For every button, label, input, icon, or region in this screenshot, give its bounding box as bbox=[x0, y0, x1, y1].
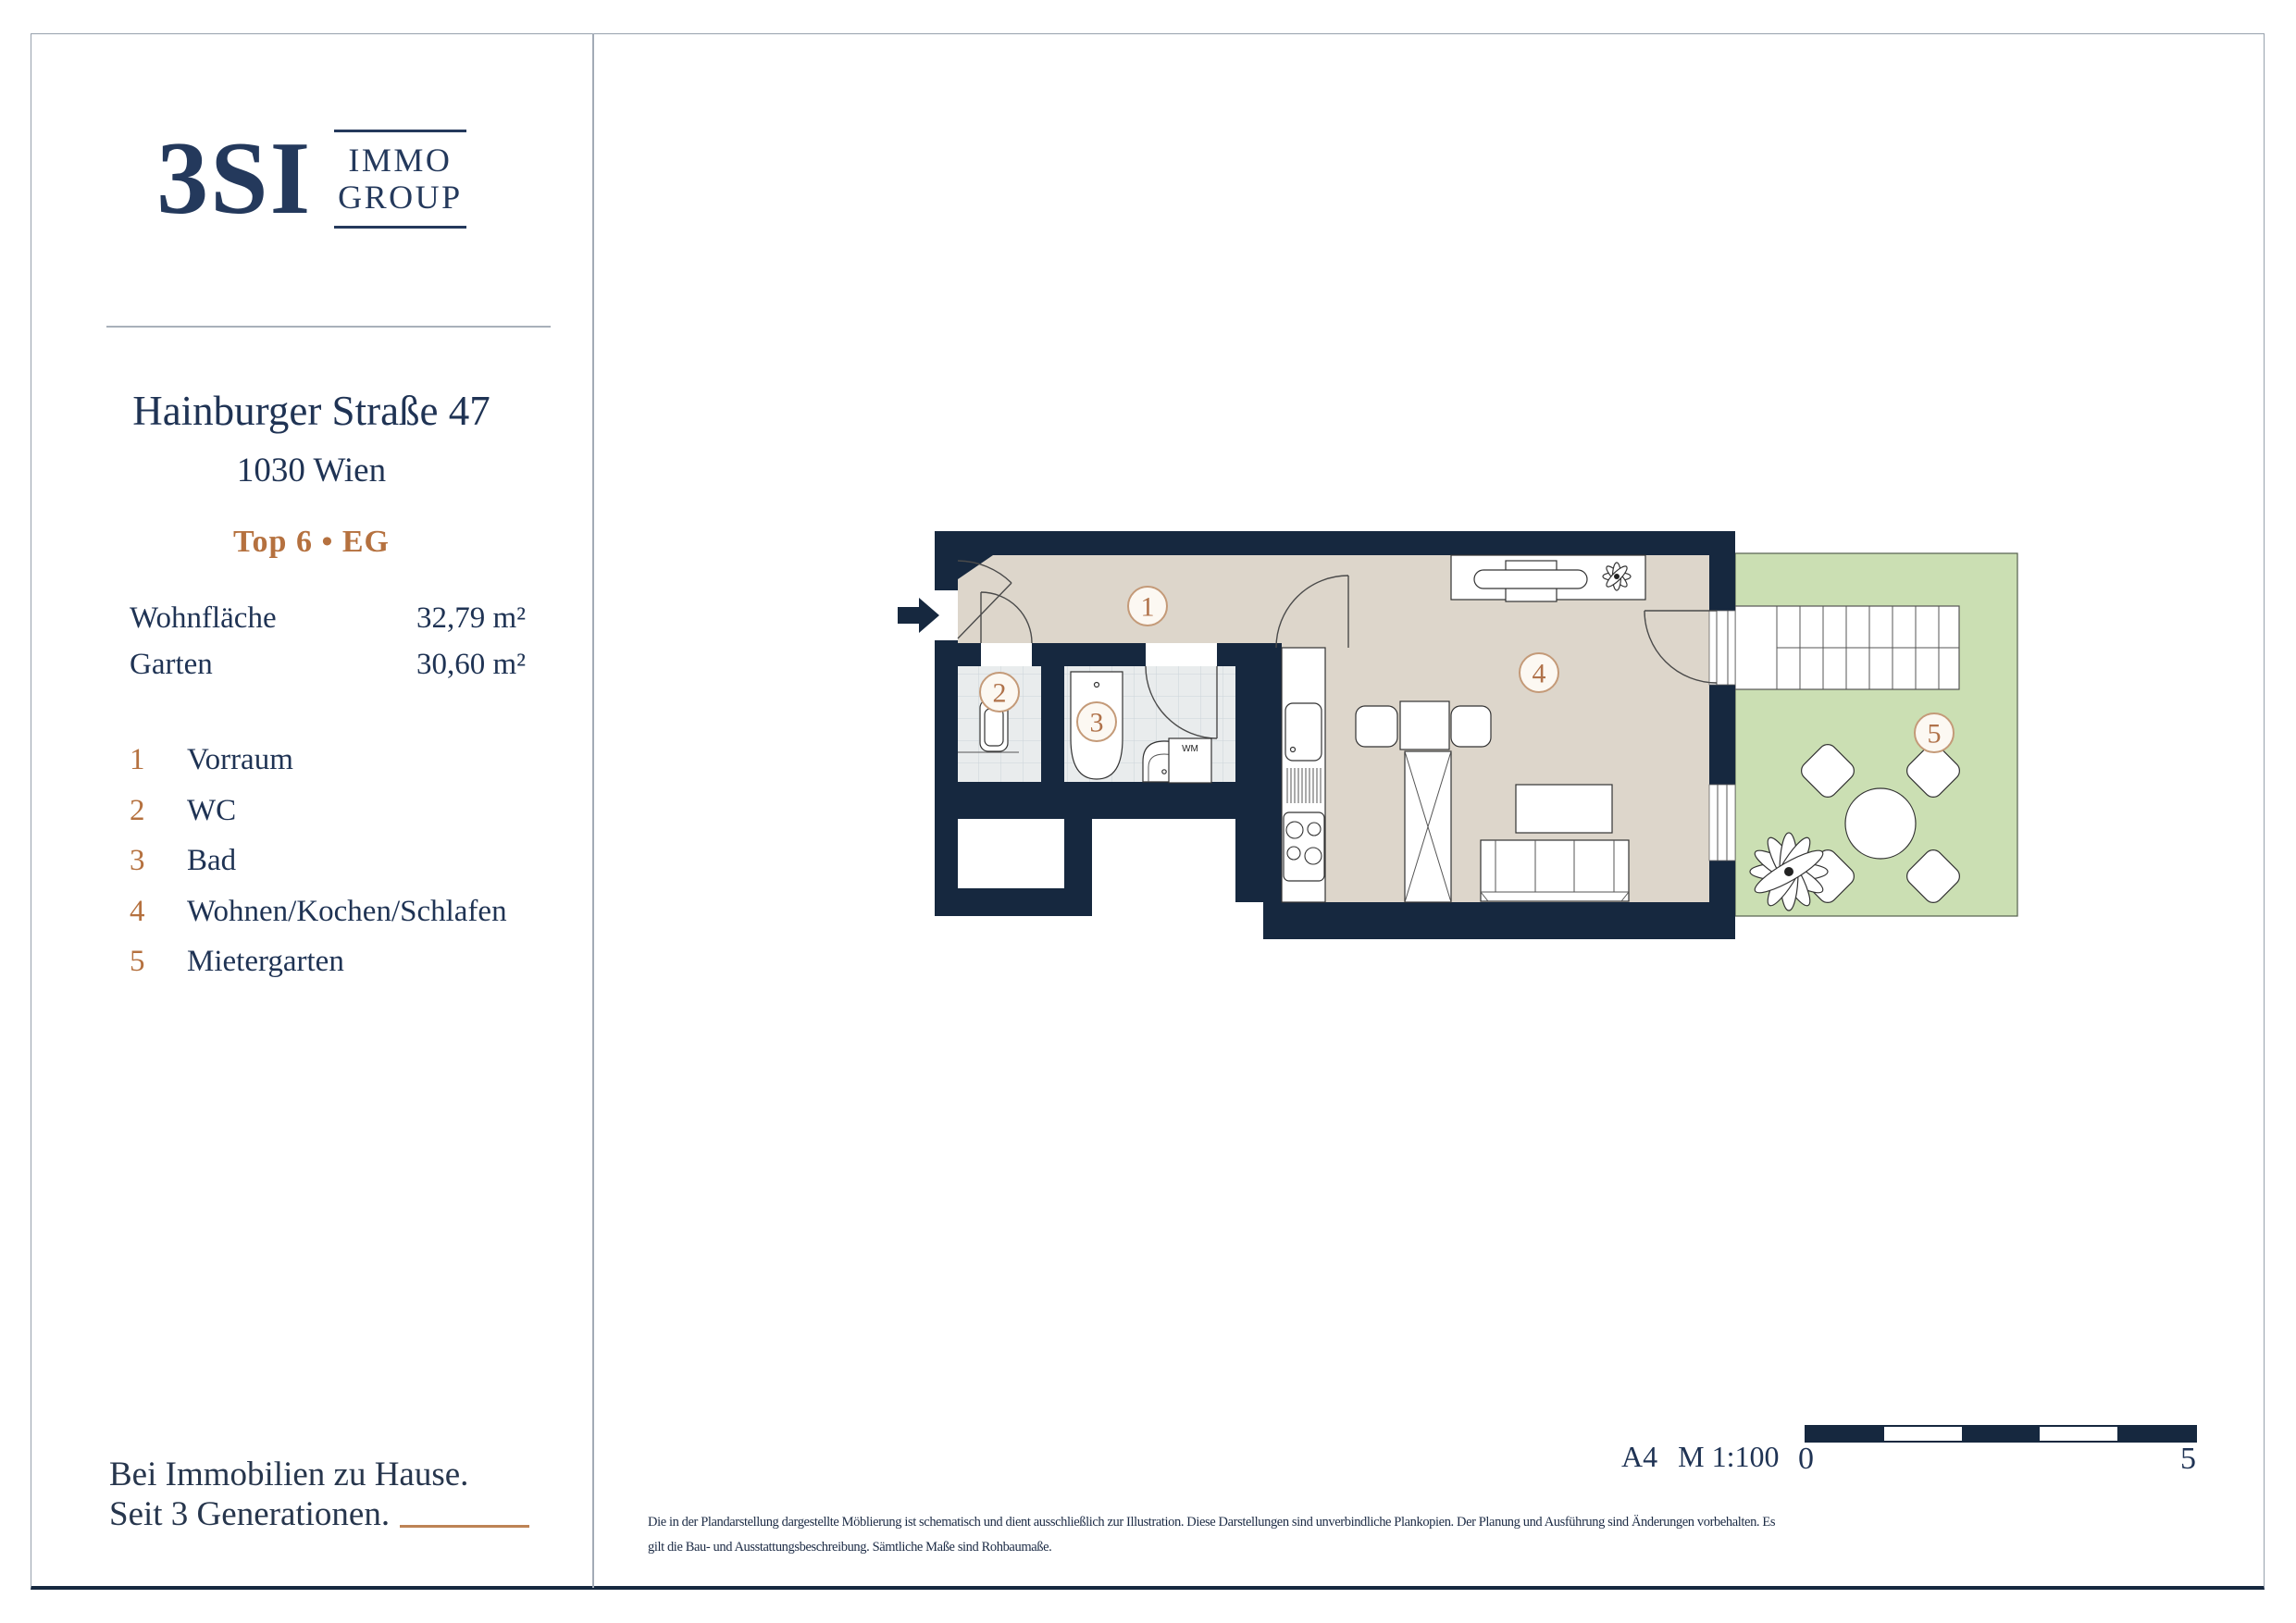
area-label: Wohnfläche bbox=[130, 601, 277, 636]
sheet-info: A4 M 1:100 bbox=[1621, 1440, 1779, 1474]
legend-number: 5 bbox=[130, 942, 187, 983]
legend-label: Wohnen/Kochen/Schlafen bbox=[187, 892, 507, 933]
legend-number: 1 bbox=[130, 740, 187, 781]
garden-stairs bbox=[1735, 606, 1959, 689]
disclaimer-text: Die in der Plandarstellung dargestellte … bbox=[648, 1510, 1851, 1560]
disclaimer-line1: Die in der Plandarstellung dargestellte … bbox=[648, 1510, 1851, 1535]
scale-bar bbox=[1805, 1425, 2197, 1443]
area-table: Wohnfläche 32,79 m² Garten 30,60 m² bbox=[130, 601, 526, 694]
area-row-wohnflaeche: Wohnfläche 32,79 m² bbox=[130, 601, 526, 636]
badge-vorraum: 1 bbox=[1128, 587, 1167, 626]
badge-mietergarten: 5 bbox=[1915, 713, 1954, 752]
scale-label-start: 0 bbox=[1798, 1442, 1814, 1477]
badge-bad: 3 bbox=[1077, 702, 1116, 741]
legend-label: Vorraum bbox=[187, 740, 293, 781]
area-row-garten: Garten 30,60 m² bbox=[130, 648, 526, 682]
sofa bbox=[1481, 840, 1629, 901]
floor-plan: WM bbox=[893, 518, 2050, 962]
logo-separator-line bbox=[106, 326, 551, 328]
logo-sub-line2: GROUP bbox=[338, 179, 463, 216]
room-legend: 1 Vorraum 2 WC 3 Bad 4 Wohnen/Kochen/Sch… bbox=[130, 740, 527, 993]
washing-machine: WM bbox=[1169, 738, 1211, 783]
sheet-scale: M 1:100 bbox=[1678, 1440, 1779, 1474]
table bbox=[1400, 701, 1449, 750]
desk-area bbox=[1451, 555, 1645, 601]
area-label: Garten bbox=[130, 648, 213, 682]
legend-item-wohnen: 4 Wohnen/Kochen/Schlafen bbox=[130, 892, 527, 933]
window bbox=[1709, 785, 1735, 861]
tagline-accent-rule bbox=[400, 1525, 529, 1528]
scale-segment bbox=[1884, 1427, 1962, 1441]
legend-item-wc: 2 WC bbox=[130, 791, 527, 832]
scale-segment bbox=[1806, 1427, 1884, 1441]
svg-text:5: 5 bbox=[1928, 719, 1942, 750]
dining-set bbox=[1356, 701, 1491, 750]
garden-door-threshold bbox=[1709, 611, 1735, 685]
legend-number: 4 bbox=[130, 892, 187, 933]
garden-table bbox=[1845, 788, 1916, 859]
chair bbox=[1356, 706, 1397, 747]
badge-wohnen: 4 bbox=[1520, 653, 1558, 692]
logo-immo-group: IMMO GROUP bbox=[334, 130, 466, 229]
wardrobe bbox=[1405, 751, 1451, 902]
logo-sub-line1: IMMO bbox=[348, 142, 452, 179]
chair bbox=[1451, 706, 1491, 747]
desk-chair bbox=[1474, 570, 1587, 588]
legend-item-bad: 3 Bad bbox=[130, 841, 527, 882]
tagline-line1: Bei Immobilien zu Hause. bbox=[109, 1455, 468, 1494]
coffee-table bbox=[1516, 785, 1612, 833]
svg-text:2: 2 bbox=[993, 678, 1007, 709]
legend-number: 2 bbox=[130, 791, 187, 832]
badge-wc: 2 bbox=[980, 673, 1019, 712]
plant-icon bbox=[1603, 563, 1631, 590]
property-city: 1030 Wien bbox=[31, 451, 592, 490]
property-street: Hainburger Straße 47 bbox=[31, 387, 592, 435]
unit-label: Top 6 • EG bbox=[31, 525, 592, 560]
legend-label: WC bbox=[187, 791, 236, 832]
tagline-line2: Seit 3 Generationen. bbox=[109, 1494, 390, 1534]
legend-item-vorraum: 1 Vorraum bbox=[130, 740, 527, 781]
scale-label-end: 5 bbox=[2180, 1442, 2196, 1477]
kitchen-stove bbox=[1284, 812, 1324, 881]
logo-3si-text: 3SI bbox=[156, 130, 312, 228]
sheet-format: A4 bbox=[1621, 1440, 1657, 1474]
legend-label: Bad bbox=[187, 841, 236, 882]
svg-text:4: 4 bbox=[1533, 659, 1546, 689]
disclaimer-line2: gilt die Bau- und Ausstattungsbeschreibu… bbox=[648, 1535, 1851, 1560]
scale-segment bbox=[2117, 1427, 2195, 1441]
svg-text:3: 3 bbox=[1090, 708, 1104, 738]
plan-sheet-page: 3SI IMMO GROUP Hainburger Straße 47 1030… bbox=[0, 0, 2296, 1623]
column-divider bbox=[592, 33, 594, 1588]
kitchen-sink bbox=[1285, 703, 1322, 761]
scale-segment bbox=[1962, 1427, 2040, 1441]
legend-label: Mietergarten bbox=[187, 942, 344, 983]
legend-number: 3 bbox=[130, 841, 187, 882]
svg-text:1: 1 bbox=[1141, 592, 1155, 623]
brand-logo: 3SI IMMO GROUP bbox=[31, 130, 592, 229]
svg-text:WM: WM bbox=[1182, 744, 1198, 754]
legend-item-mietergarten: 5 Mietergarten bbox=[130, 942, 527, 983]
scale-segment bbox=[2040, 1427, 2117, 1441]
kitchen-counter bbox=[1282, 648, 1325, 902]
area-value: 32,79 m² bbox=[416, 601, 526, 636]
area-value: 30,60 m² bbox=[416, 648, 526, 682]
